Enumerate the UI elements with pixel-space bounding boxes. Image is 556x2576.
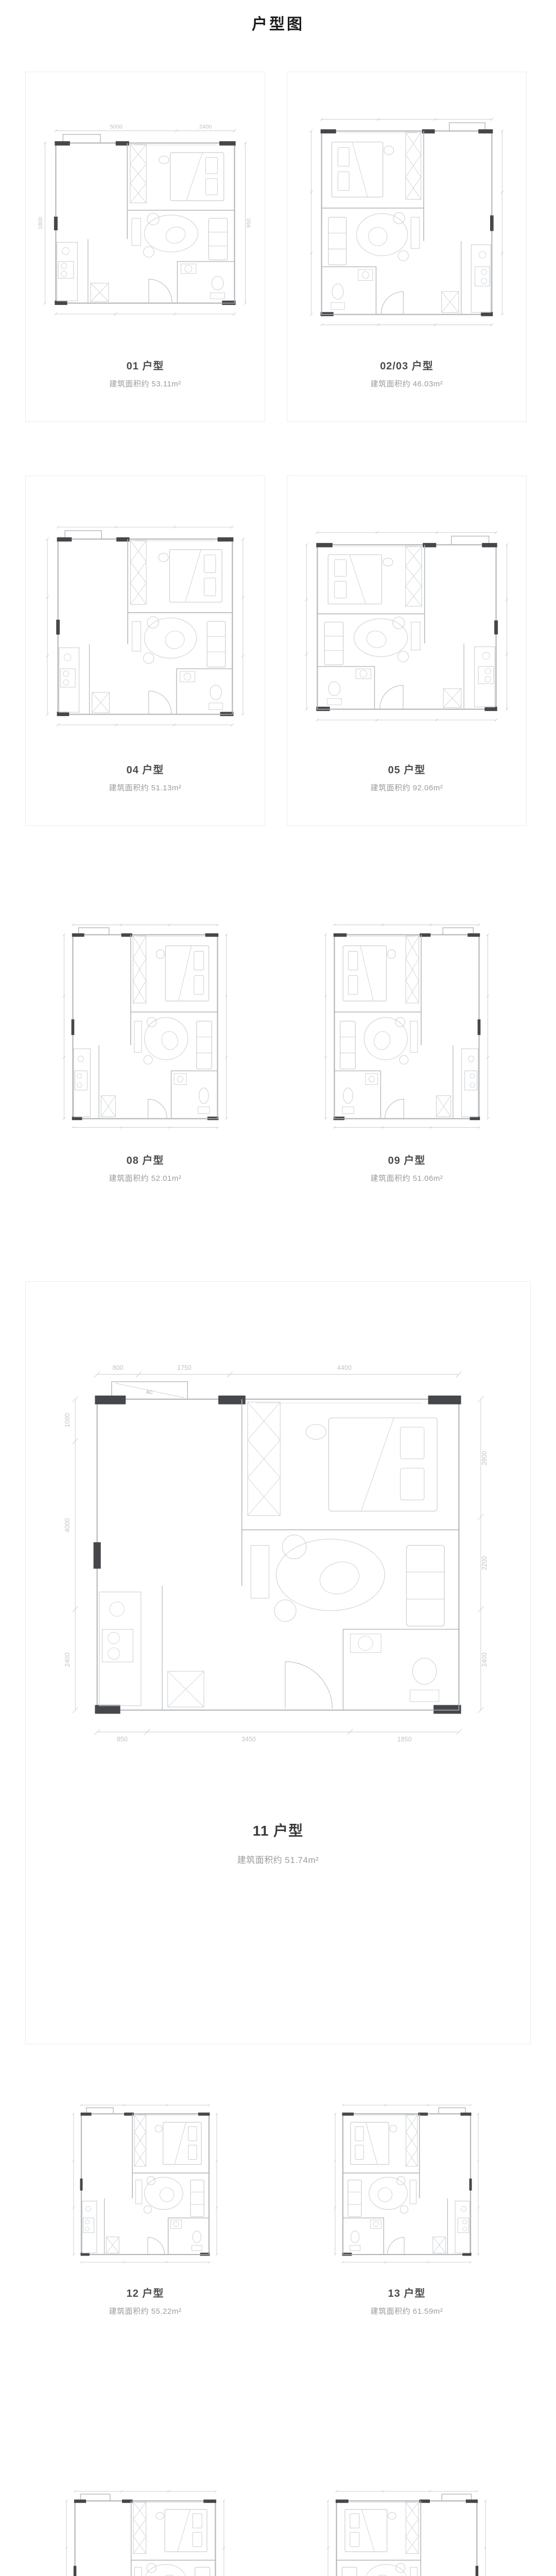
unit-name: 04 户型 xyxy=(127,761,164,776)
floor-plan-09 xyxy=(319,905,494,1145)
unit-card-15: 15 户型 建筑面积约 53.87m² xyxy=(287,2471,527,2576)
svg-text:4000: 4000 xyxy=(64,1518,71,1532)
unit-card-08: 08 户型 建筑面积约 52.01m² xyxy=(25,905,265,1183)
svg-text:3450: 3450 xyxy=(241,1735,256,1742)
unit-name: 08 户型 xyxy=(127,1152,164,1167)
page-title: 户型图 xyxy=(0,11,556,34)
svg-text:800: 800 xyxy=(113,1364,124,1371)
floor-plan-drawing: AC80017504400850345018501000400024002800… xyxy=(59,1354,497,1748)
svg-text:1000: 1000 xyxy=(64,1413,71,1427)
floor-plan-08 xyxy=(58,905,233,1145)
unit-area: 建筑面积约 55.22m² xyxy=(109,2306,182,2316)
floor-plan-11: AC80017504400850345018501000400024002800… xyxy=(59,1331,497,1770)
unit-area: 建筑面积约 51.13m² xyxy=(109,782,182,793)
floor-plan-drawing xyxy=(304,110,510,332)
svg-text:5000: 5000 xyxy=(110,124,122,130)
unit-area: 建筑面积约 92.06m² xyxy=(371,782,443,793)
unit-card-02-03: 02/03 户型 建筑面积约 46.03m² xyxy=(287,72,527,422)
unit-card-13: 13 户型 建筑面积约 61.59m² xyxy=(287,2088,527,2316)
floor-plan-drawing: 500024001800950 xyxy=(37,121,253,322)
floor-plan-drawing xyxy=(40,517,251,733)
svg-text:2400: 2400 xyxy=(64,1652,71,1667)
floor-plan-page: 户型图 500024001800950 01 户型 建筑面积约 53.11m² … xyxy=(0,0,556,2576)
floor-plan-05 xyxy=(299,496,515,754)
svg-text:1800: 1800 xyxy=(38,216,44,229)
unit-card-09: 09 户型 建筑面积约 51.06m² xyxy=(287,905,527,1183)
svg-text:1850: 1850 xyxy=(397,1735,412,1742)
unit-name: 05 户型 xyxy=(388,761,426,776)
unit-area: 建筑面积约 52.01m² xyxy=(109,1173,182,1183)
unit-card-01: 500024001800950 01 户型 建筑面积约 53.11m² xyxy=(25,72,265,422)
unit-name: 02/03 户型 xyxy=(380,358,433,372)
floor-plan-drawing xyxy=(322,2483,492,2576)
floor-plan-drawing xyxy=(60,2483,230,2576)
floor-plan-drawing xyxy=(68,2098,222,2268)
floor-plan-drawing xyxy=(58,917,233,1134)
svg-text:850: 850 xyxy=(117,1735,128,1742)
unit-card-11-featured: AC80017504400850345018501000400024002800… xyxy=(25,1281,531,2044)
svg-text:2800: 2800 xyxy=(481,1451,488,1465)
floor-plan-15 xyxy=(322,2471,492,2576)
unit-card-04: 04 户型 建筑面积约 51.13m² xyxy=(25,476,265,826)
unit-card-05: 05 户型 建筑面积约 92.06m² xyxy=(287,476,527,826)
floor-plan-drawing xyxy=(319,917,494,1134)
floor-plan-02-03 xyxy=(304,92,510,350)
floor-plan-13 xyxy=(329,2088,484,2278)
floor-plan-14 xyxy=(60,2471,230,2576)
svg-text:2400: 2400 xyxy=(199,124,212,130)
unit-name: 11 户型 xyxy=(253,1820,303,1840)
svg-text:AC: AC xyxy=(146,1389,153,1395)
unit-area: 建筑面积约 61.59m² xyxy=(371,2306,443,2316)
unit-card-12: 12 户型 建筑面积约 55.22m² xyxy=(25,2088,265,2316)
floor-plan-04 xyxy=(40,496,251,754)
floor-plan-12 xyxy=(68,2088,222,2278)
unit-area: 建筑面积约 46.03m² xyxy=(371,378,443,389)
unit-name: 01 户型 xyxy=(127,358,164,372)
svg-text:4400: 4400 xyxy=(337,1364,352,1371)
unit-name: 12 户型 xyxy=(127,2285,164,2300)
floor-plan-01: 500024001800950 xyxy=(37,92,253,350)
unit-name: 09 户型 xyxy=(388,1152,426,1167)
unit-area: 建筑面积约 51.06m² xyxy=(371,1173,443,1183)
svg-text:2400: 2400 xyxy=(481,1652,488,1667)
unit-card-14: 14 户型 建筑面积约 61.45m² xyxy=(25,2471,265,2576)
svg-text:2200: 2200 xyxy=(481,1555,488,1570)
floor-plan-drawing xyxy=(329,2098,484,2268)
floor-plan-drawing xyxy=(299,522,515,728)
unit-name: 13 户型 xyxy=(388,2285,426,2300)
unit-area: 建筑面积约 53.11m² xyxy=(109,378,181,389)
svg-text:1750: 1750 xyxy=(177,1364,192,1371)
svg-text:950: 950 xyxy=(246,218,252,227)
unit-area: 建筑面积约 51.74m² xyxy=(237,1853,319,1866)
